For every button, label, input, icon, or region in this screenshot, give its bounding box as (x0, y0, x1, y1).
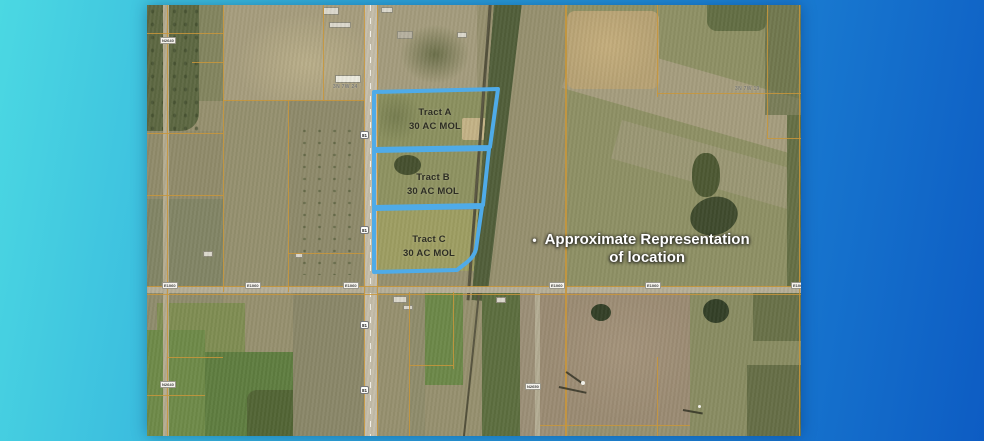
annotation-text: Approximate Representation of location (545, 231, 750, 267)
annotation-line1: Approximate Representation (545, 231, 750, 248)
aerial-map-image: Tract A 30 AC MOL Tract B 30 AC MOL Trac… (147, 5, 801, 436)
annotation-line2: of location (609, 249, 685, 266)
highway-81-shield: 81 (360, 131, 369, 139)
tract-acreage: 30 AC MOL (377, 185, 489, 199)
road-label-n2640: N2640 (160, 37, 176, 44)
flyer-canvas: Tract A 30 AC MOL Tract B 30 AC MOL Trac… (0, 0, 984, 441)
township-label-right: 3N 7W 19 (735, 86, 760, 92)
tract-a-label: Tract A 30 AC MOL (375, 106, 495, 134)
road-label-e1060: E1060 (791, 282, 801, 289)
road-label-e1060: E1060 (162, 282, 178, 289)
tract-outlines (147, 5, 801, 436)
road-label-e1060: E1060 (343, 282, 359, 289)
tract-b-label: Tract B 30 AC MOL (377, 171, 489, 199)
road-label-n2640: N2640 (160, 381, 176, 388)
location-annotation: • Approximate Representation of location (519, 231, 763, 267)
highway-81-shield: 81 (360, 321, 369, 329)
road-label-n2650: N2650 (525, 383, 541, 390)
road-label-e1060: E1060 (245, 282, 261, 289)
tract-name: Tract B (377, 171, 489, 185)
tract-acreage: 30 AC MOL (375, 120, 495, 134)
road-label-e1060: E1060 (645, 282, 661, 289)
road-label-e1060: E1060 (549, 282, 565, 289)
tract-c-label: Tract C 30 AC MOL (377, 233, 481, 261)
township-label-left: 3N 7W 24 (333, 84, 358, 90)
bullet-point: • (532, 231, 536, 249)
highway-81-shield: 81 (360, 386, 369, 394)
tract-name: Tract C (377, 233, 481, 247)
tract-name: Tract A (375, 106, 495, 120)
highway-81-shield: 81 (360, 226, 369, 234)
tract-acreage: 30 AC MOL (377, 247, 481, 261)
